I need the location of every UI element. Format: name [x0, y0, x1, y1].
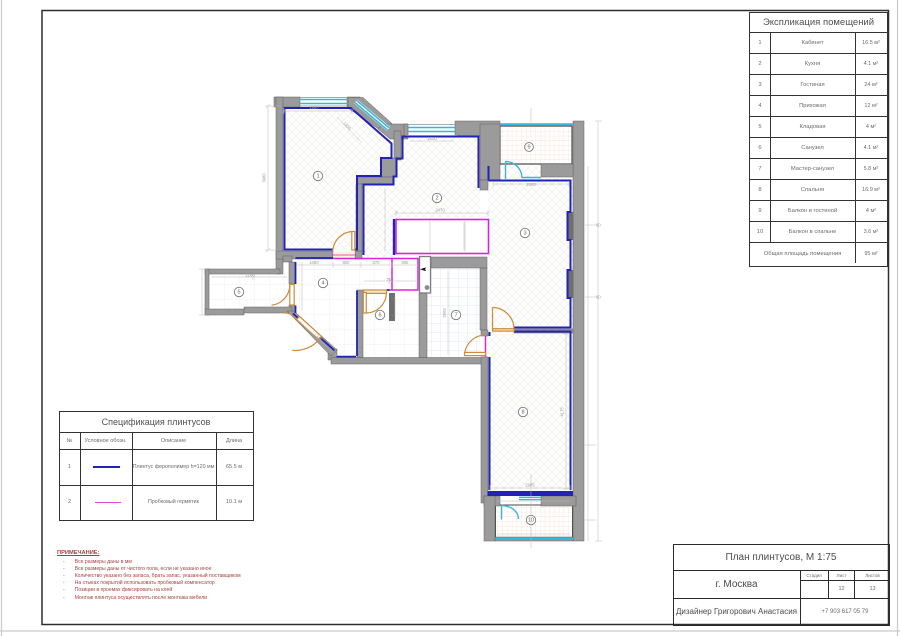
svg-text:1600: 1600 — [427, 136, 437, 141]
svg-text:6: 6 — [378, 313, 381, 319]
svg-text:800: 800 — [343, 260, 351, 265]
svg-text:2980: 2980 — [309, 105, 319, 110]
svg-text:865: 865 — [402, 260, 410, 265]
svg-text:2470: 2470 — [435, 208, 445, 213]
svg-text:4: 4 — [321, 281, 324, 287]
svg-text:2: 2 — [435, 196, 438, 202]
svg-text:2905: 2905 — [442, 308, 447, 318]
svg-text:5: 5 — [237, 290, 240, 296]
svg-text:2400: 2400 — [526, 182, 536, 187]
svg-text:2180: 2180 — [245, 273, 255, 278]
svg-text:870: 870 — [373, 260, 381, 265]
svg-text:80: 80 — [596, 223, 601, 228]
svg-text:7: 7 — [454, 313, 457, 319]
svg-text:9: 9 — [527, 145, 530, 151]
svg-text:750: 750 — [387, 277, 395, 282]
svg-text:80: 80 — [596, 295, 601, 300]
svg-text:4175: 4175 — [560, 407, 565, 417]
svg-text:8: 8 — [521, 410, 524, 416]
svg-text:2905: 2905 — [525, 483, 535, 488]
svg-text:3980: 3980 — [262, 173, 267, 183]
svg-text:1: 1 — [316, 174, 319, 180]
svg-text:1080: 1080 — [309, 260, 319, 265]
svg-text:3: 3 — [523, 231, 526, 237]
